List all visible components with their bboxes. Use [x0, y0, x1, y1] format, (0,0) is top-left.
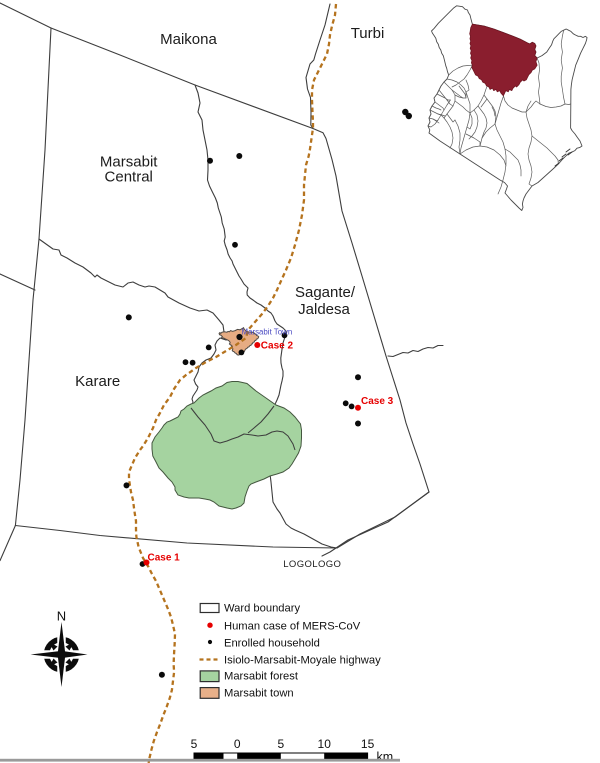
svg-text:Ward boundary: Ward boundary — [224, 602, 300, 614]
svg-text:15: 15 — [361, 737, 375, 751]
svg-text:0: 0 — [234, 737, 241, 751]
svg-text:Turbi: Turbi — [351, 25, 385, 42]
svg-text:Jaldesa: Jaldesa — [298, 301, 350, 318]
svg-text:Isiolo-Marsabit-Moyale highway: Isiolo-Marsabit-Moyale highway — [224, 654, 381, 666]
svg-text:Central: Central — [105, 169, 153, 186]
svg-text:Maikona: Maikona — [160, 31, 217, 48]
svg-text:Enrolled household: Enrolled household — [224, 637, 320, 649]
svg-text:Case 1: Case 1 — [148, 552, 181, 563]
svg-text:10: 10 — [318, 737, 332, 751]
svg-text:Marsabit town: Marsabit town — [224, 687, 294, 699]
svg-text:Human case of MERS-CoV: Human case of MERS-CoV — [224, 620, 361, 632]
svg-text:5: 5 — [191, 737, 198, 751]
svg-text:Case 2: Case 2 — [261, 341, 294, 352]
svg-text:Karare: Karare — [75, 373, 120, 390]
svg-text:Marsabit forest: Marsabit forest — [224, 670, 299, 682]
svg-text:5: 5 — [277, 737, 284, 751]
svg-text:Sagante/: Sagante/ — [295, 284, 356, 301]
svg-text:N: N — [57, 609, 66, 624]
svg-text:Marsabit Town: Marsabit Town — [242, 327, 293, 336]
svg-text:Case 3: Case 3 — [361, 396, 394, 407]
svg-text:LOGOLOGO: LOGOLOGO — [283, 559, 341, 570]
